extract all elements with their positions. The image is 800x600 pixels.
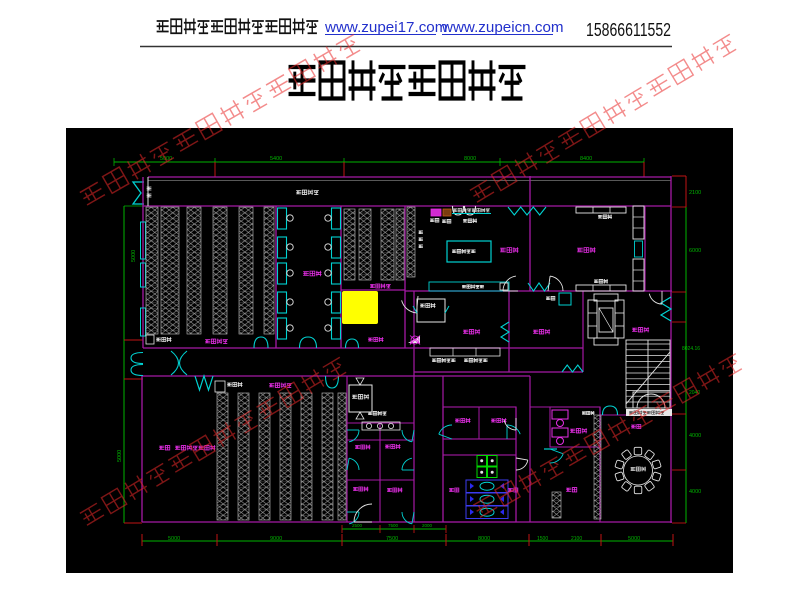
svg-text:6000: 6000 [689, 248, 701, 254]
svg-text:8000: 8000 [478, 536, 490, 542]
svg-text:15866611552: 15866611552 [586, 20, 671, 40]
svg-text:8024.16: 8024.16 [682, 346, 700, 352]
svg-text:2000: 2000 [422, 523, 433, 528]
svg-text:2100: 2100 [689, 190, 701, 196]
svg-text:9000: 9000 [270, 536, 282, 542]
svg-text:5000: 5000 [628, 536, 640, 542]
svg-text:5000: 5000 [117, 450, 123, 462]
svg-text:8400: 8400 [580, 156, 592, 162]
svg-text:5000: 5000 [131, 250, 137, 262]
svg-text:7500: 7500 [388, 523, 399, 528]
svg-text:www.zupei17.com: www.zupei17.com [324, 19, 447, 36]
svg-text:2500: 2500 [352, 523, 363, 528]
svg-text:2100: 2100 [571, 536, 582, 542]
svg-text:5400: 5400 [270, 156, 282, 162]
svg-text:5000: 5000 [168, 536, 180, 542]
svg-text:7500: 7500 [386, 536, 398, 542]
svg-text:4000: 4000 [689, 489, 701, 495]
svg-text:8000: 8000 [464, 156, 476, 162]
svg-text:4000: 4000 [689, 433, 701, 439]
svg-text:1500: 1500 [537, 536, 548, 542]
svg-text:www.zupeicn.com: www.zupeicn.com [441, 19, 564, 36]
